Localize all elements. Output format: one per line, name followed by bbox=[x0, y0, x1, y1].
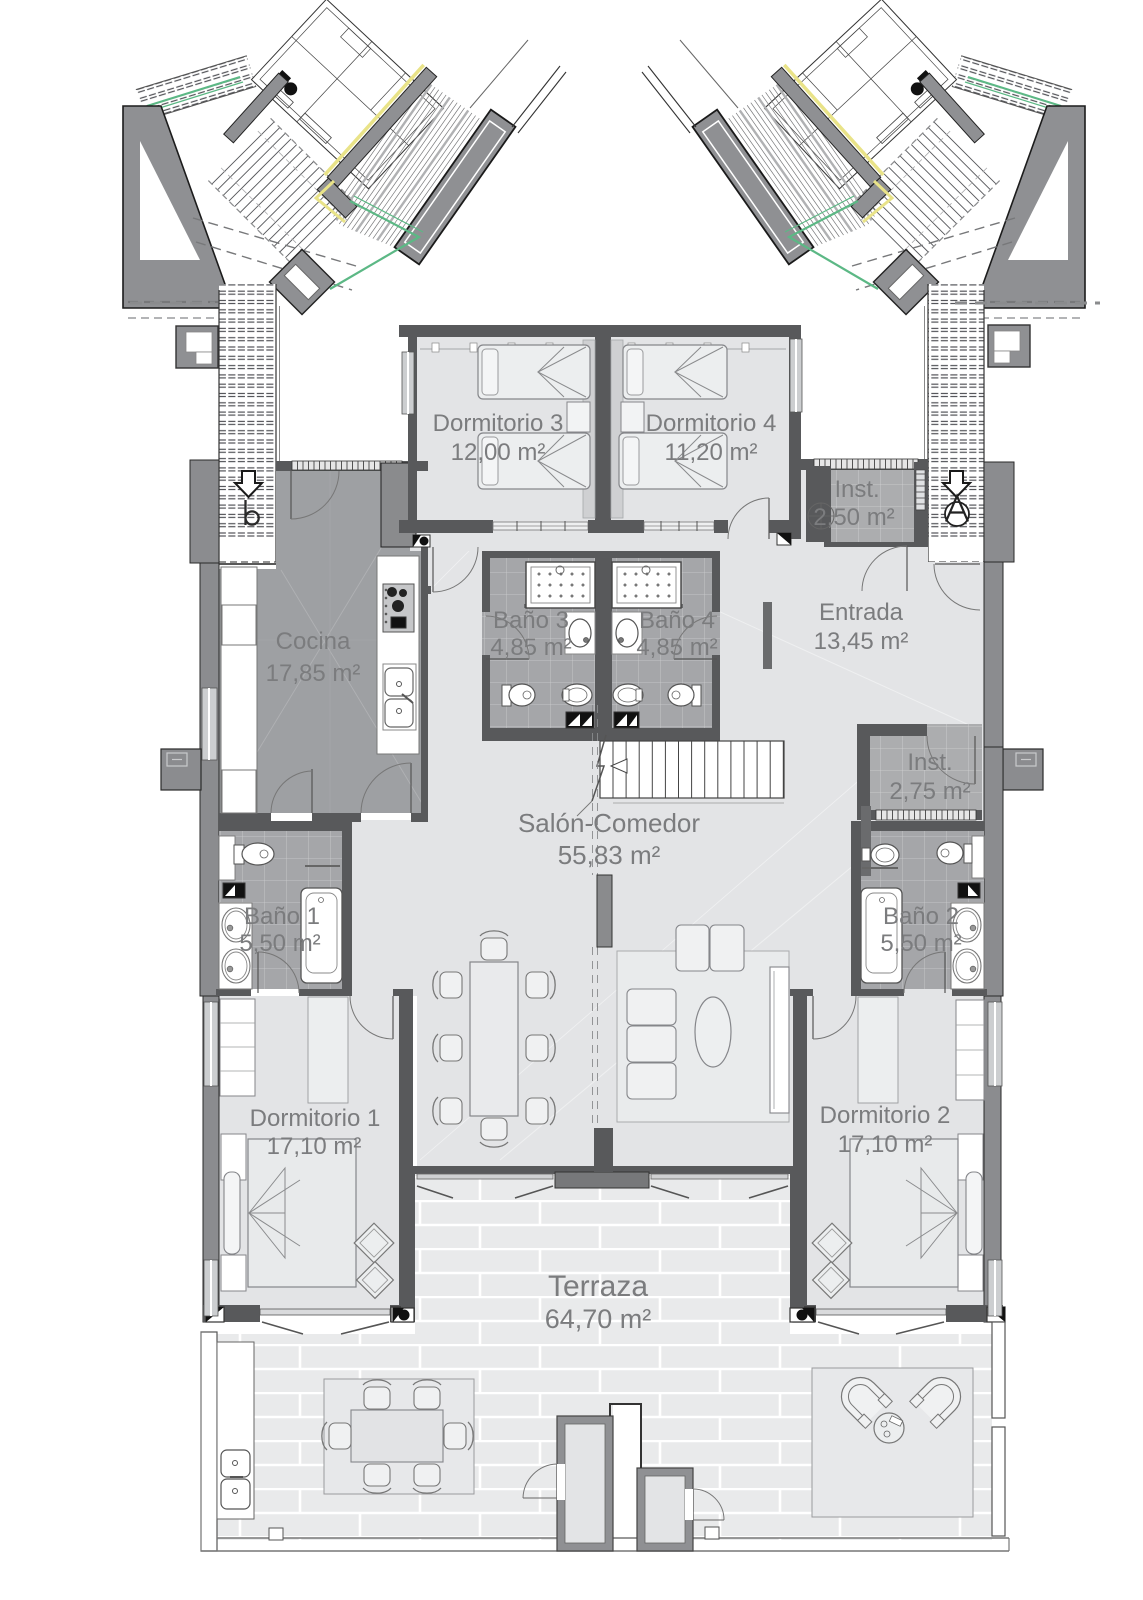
svg-text:17,10 m²: 17,10 m² bbox=[838, 1131, 933, 1158]
svg-text:17,10 m²: 17,10 m² bbox=[267, 1133, 362, 1160]
svg-text:11,20 m²: 11,20 m² bbox=[665, 439, 758, 466]
svg-text:Baño 3: Baño 3 bbox=[493, 607, 569, 634]
svg-text:Baño 2: Baño 2 bbox=[883, 903, 959, 930]
svg-text:64,70 m²: 64,70 m² bbox=[545, 1304, 652, 1334]
svg-text:12,00 m²: 12,00 m² bbox=[451, 439, 546, 466]
svg-text:Dormitorio 1: Dormitorio 1 bbox=[250, 1105, 381, 1132]
svg-text:Terraza: Terraza bbox=[548, 1270, 648, 1303]
svg-text:Baño 1: Baño 1 bbox=[244, 903, 320, 930]
svg-text:17,85 m²: 17,85 m² bbox=[266, 660, 361, 687]
svg-text:Inst.: Inst. bbox=[834, 476, 879, 503]
svg-text:2,75 m²: 2,75 m² bbox=[889, 778, 970, 805]
svg-text:Dormitorio 2: Dormitorio 2 bbox=[820, 1102, 951, 1129]
svg-text:Cocina: Cocina bbox=[276, 628, 351, 655]
svg-text:5,50 m²: 5,50 m² bbox=[880, 930, 961, 957]
svg-text:Entrada: Entrada bbox=[819, 599, 904, 626]
svg-text:Salón-Comedor: Salón-Comedor bbox=[518, 808, 700, 838]
svg-text:4,85 m²: 4,85 m² bbox=[490, 634, 571, 661]
svg-text:4,85 m²: 4,85 m² bbox=[636, 634, 717, 661]
svg-text:Inst.: Inst. bbox=[907, 749, 952, 776]
svg-text:2,50 m²: 2,50 m² bbox=[813, 504, 894, 531]
svg-text:13,45 m²: 13,45 m² bbox=[814, 628, 909, 655]
svg-text:5,50 m²: 5,50 m² bbox=[239, 930, 320, 957]
svg-text:Baño 4: Baño 4 bbox=[639, 607, 715, 634]
svg-text:Dormitorio 3: Dormitorio 3 bbox=[433, 410, 564, 437]
svg-text:Dormitorio 4: Dormitorio 4 bbox=[646, 410, 777, 437]
svg-text:55,83 m²: 55,83 m² bbox=[558, 840, 661, 870]
